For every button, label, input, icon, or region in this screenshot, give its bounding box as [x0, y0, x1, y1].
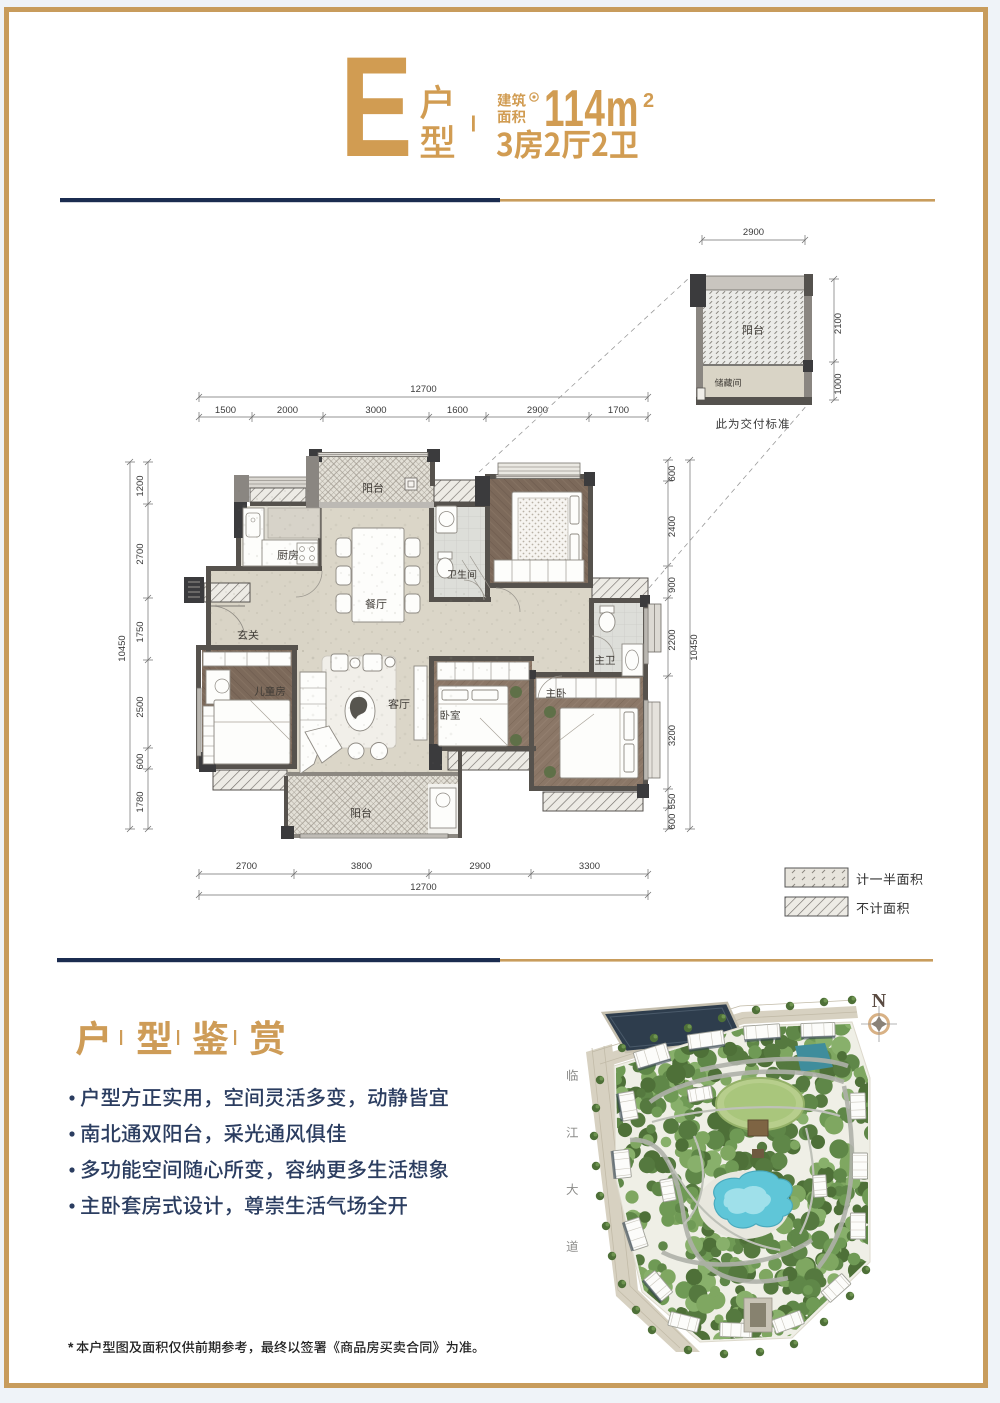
- svg-text:2100: 2100: [833, 313, 844, 334]
- svg-text:3200: 3200: [667, 725, 678, 746]
- svg-text:2900: 2900: [527, 405, 548, 416]
- svg-text:2400: 2400: [667, 516, 678, 537]
- svg-text:2700: 2700: [135, 543, 146, 564]
- svg-text:1500: 1500: [215, 405, 236, 416]
- svg-text:1200: 1200: [135, 475, 146, 496]
- svg-text:600: 600: [667, 814, 678, 830]
- svg-text:1600: 1600: [447, 405, 468, 416]
- svg-text:3300: 3300: [579, 861, 600, 872]
- svg-text:2900: 2900: [743, 227, 764, 238]
- svg-text:*: *: [68, 1339, 74, 1355]
- svg-text:900: 900: [667, 577, 678, 593]
- svg-text:12700: 12700: [410, 882, 436, 893]
- svg-text:600: 600: [667, 466, 678, 482]
- svg-text:E: E: [340, 27, 412, 187]
- svg-text:2900: 2900: [469, 861, 490, 872]
- svg-text:12700: 12700: [410, 384, 436, 395]
- svg-text:3800: 3800: [351, 861, 372, 872]
- svg-text:1000: 1000: [833, 373, 844, 394]
- svg-text:1780: 1780: [135, 791, 146, 812]
- svg-text:600: 600: [135, 754, 146, 770]
- svg-text:2: 2: [643, 90, 654, 112]
- svg-text:2200: 2200: [667, 629, 678, 650]
- svg-text:114m: 114m: [544, 79, 639, 138]
- svg-text:10450: 10450: [689, 634, 700, 660]
- svg-text:550: 550: [667, 794, 678, 810]
- svg-text:10450: 10450: [117, 635, 128, 661]
- svg-text:1750: 1750: [135, 621, 146, 642]
- svg-text:3000: 3000: [365, 405, 386, 416]
- svg-text:2000: 2000: [277, 405, 298, 416]
- svg-text:1700: 1700: [608, 405, 629, 416]
- svg-text:2700: 2700: [236, 861, 257, 872]
- svg-text:2500: 2500: [135, 696, 146, 717]
